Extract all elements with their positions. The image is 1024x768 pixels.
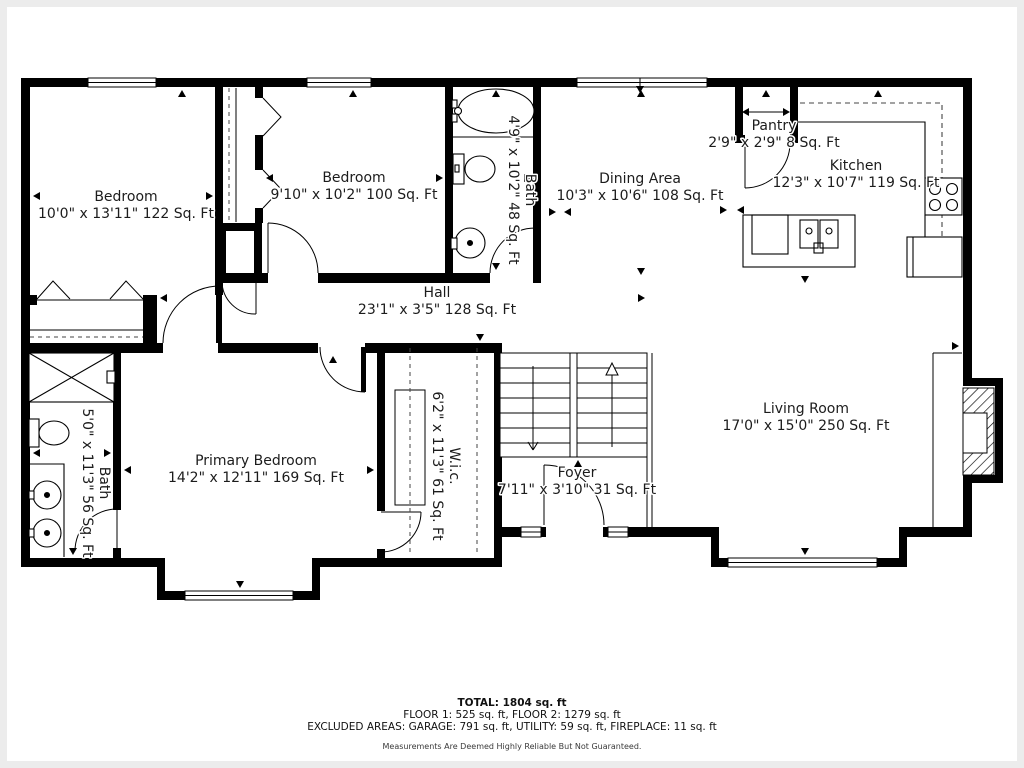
room-name: Foyer — [558, 465, 597, 481]
bath-primary-fixtures — [29, 353, 115, 557]
room-label-dining-area: Dining Area 10'3" x 10'6" 108 Sq. Ft — [556, 171, 724, 204]
door-arc — [163, 286, 220, 343]
room-dims: 7'11" x 3'10" 31 Sq. Ft — [498, 482, 657, 498]
room-label-living-room: Living Room 17'0" x 15'0" 250 Sq. Ft — [722, 401, 890, 434]
room-dims: 9'10" x 10'2" 100 Sq. Ft — [270, 187, 438, 203]
room-labels: Bedroom 10'0" x 13'11" 122 Sq. Ft Bedroo… — [38, 115, 940, 558]
room-dims: 14'2" x 12'11" 169 Sq. Ft — [168, 470, 344, 486]
room-label-primary-bedroom: Primary Bedroom 14'2" x 12'11" 169 Sq. F… — [168, 453, 344, 486]
room-name: Dining Area — [599, 171, 681, 187]
door-arc — [268, 223, 318, 273]
bay-window — [185, 591, 293, 600]
floor-plan: Bedroom 10'0" x 13'11" 122 Sq. Ft Bedroo… — [0, 0, 1024, 768]
excluded-areas: EXCLUDED AREAS: GARAGE: 791 sq. ft, UTIL… — [0, 721, 1024, 733]
room-dims: 23'1" x 3'5" 128 Sq. Ft — [358, 302, 517, 318]
total-area: TOTAL: 1804 sq. ft — [0, 697, 1024, 709]
sidelite-window — [608, 527, 628, 537]
room-name: Pantry — [752, 118, 797, 134]
sliding-door — [577, 78, 707, 87]
vanity — [29, 464, 64, 557]
bay-window — [728, 558, 877, 567]
room-label-bedroom-upper-left: Bedroom 10'0" x 13'11" 122 Sq. Ft — [38, 189, 214, 222]
room-label-pantry: Pantry 2'9" x 2'9" 8 Sq. Ft — [708, 118, 840, 151]
door-arc — [222, 281, 256, 314]
room-label-bath-primary: Bath 5'0" x 11'3" 56 Sq. Ft — [79, 408, 112, 558]
floor-plan-page: Bedroom 10'0" x 13'11" 122 Sq. Ft Bedroo… — [0, 0, 1024, 768]
window — [88, 78, 156, 87]
room-dims: 2'9" x 2'9" 8 Sq. Ft — [708, 135, 840, 151]
room-dims: 5'0" x 11'3" 56 Sq. Ft — [79, 408, 95, 558]
room-dims: 17'0" x 15'0" 250 Sq. Ft — [722, 418, 890, 434]
room-name: Bedroom — [94, 189, 157, 205]
room-name: Living Room — [763, 401, 849, 417]
sidelite-window — [521, 527, 541, 537]
room-dims: 10'0" x 13'11" 122 Sq. Ft — [38, 206, 214, 222]
room-name: Bath — [522, 174, 538, 207]
room-name: Bath — [96, 467, 112, 500]
room-name: Kitchen — [830, 158, 883, 174]
room-label-kitchen: Kitchen 12'3" x 10'7" 119 Sq. Ft — [772, 158, 940, 191]
room-dims: 12'3" x 10'7" 119 Sq. Ft — [772, 175, 940, 191]
shower — [29, 353, 115, 402]
sink — [451, 228, 485, 258]
room-name: Primary Bedroom — [195, 453, 317, 469]
kitchen-island — [743, 215, 855, 267]
room-name: Hall — [424, 285, 451, 301]
room-label-hall: Hall 23'1" x 3'5" 128 Sq. Ft — [358, 285, 517, 318]
door-arc — [381, 512, 421, 552]
door-arc — [320, 347, 365, 392]
room-dims: 4'9" x 10'2" 48 Sq. Ft — [505, 115, 521, 265]
disclaimer: Measurements Are Deemed Highly Reliable … — [0, 742, 1024, 751]
cabinet — [907, 237, 962, 277]
room-label-bedroom-upper-middle: Bedroom 9'10" x 10'2" 100 Sq. Ft — [270, 170, 438, 203]
summary-footer: TOTAL: 1804 sq. ft FLOOR 1: 525 sq. ft, … — [0, 697, 1024, 751]
toilet — [453, 154, 495, 184]
staircase — [500, 353, 652, 527]
room-dims: 10'3" x 10'6" 108 Sq. Ft — [556, 188, 724, 204]
room-dims: 6'2" x 11'3" 61 Sq. Ft — [429, 391, 445, 541]
toilet — [29, 419, 69, 447]
bifold-door — [37, 281, 143, 299]
room-label-wic: W.i.c. 6'2" x 11'3" 61 Sq. Ft — [429, 391, 462, 541]
room-name: Bedroom — [322, 170, 385, 186]
floor-areas: FLOOR 1: 525 sq. ft, FLOOR 2: 1279 sq. f… — [0, 709, 1024, 721]
room-name: W.i.c. — [446, 447, 462, 484]
room-label-foyer: Foyer 7'11" x 3'10" 31 Sq. Ft — [498, 465, 657, 498]
window — [307, 78, 371, 87]
